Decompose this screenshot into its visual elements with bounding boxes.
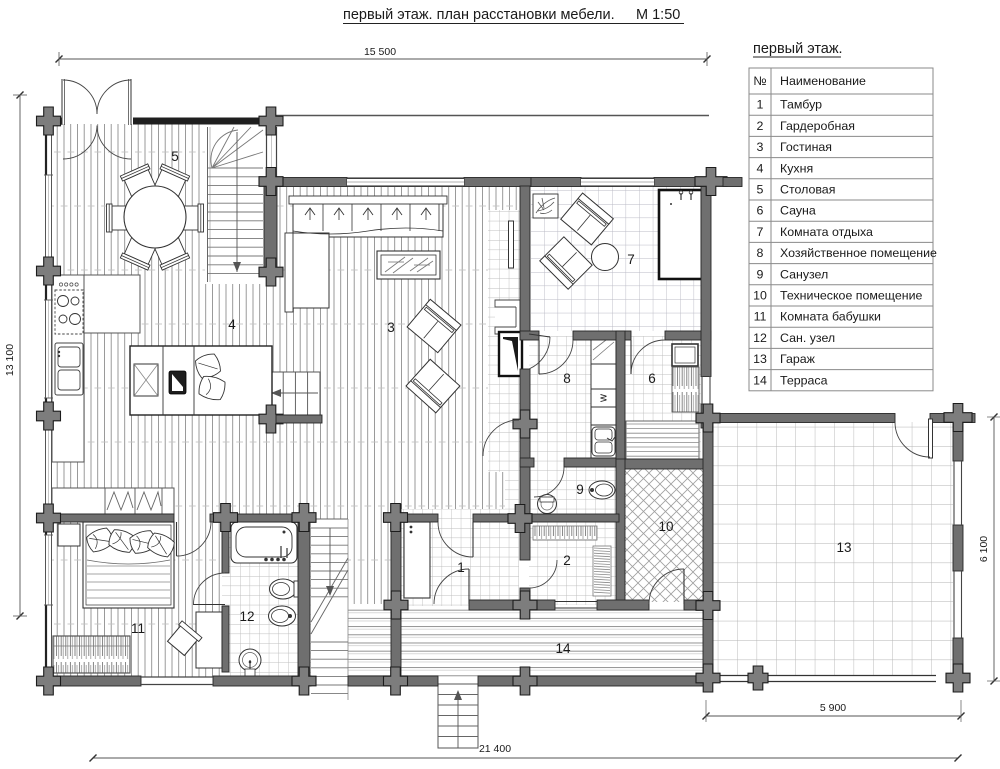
svg-text:14: 14 xyxy=(753,373,767,387)
svg-text:Гостиная: Гостиная xyxy=(780,140,832,154)
svg-text:13: 13 xyxy=(753,352,767,366)
svg-text:10: 10 xyxy=(658,519,673,534)
svg-text:12: 12 xyxy=(239,609,254,624)
svg-text:Комната отдыха: Комната отдыха xyxy=(780,225,873,239)
svg-text:6: 6 xyxy=(757,204,764,218)
svg-text:Комната бабушки: Комната бабушки xyxy=(780,310,881,324)
svg-text:3: 3 xyxy=(387,320,395,335)
svg-text:9: 9 xyxy=(576,482,584,497)
svg-text:7: 7 xyxy=(627,252,635,267)
svg-text:21 400: 21 400 xyxy=(479,743,511,755)
svg-text:Хозяйственное помещение: Хозяйственное помещение xyxy=(780,246,937,260)
svg-text:2: 2 xyxy=(757,119,764,133)
svg-text:14: 14 xyxy=(555,641,571,656)
svg-text:15 500: 15 500 xyxy=(364,46,396,58)
svg-text:Терраса: Терраса xyxy=(780,373,828,387)
svg-text:w: w xyxy=(598,394,610,403)
svg-text:первый этаж.: первый этаж. xyxy=(753,41,843,57)
svg-text:1: 1 xyxy=(757,98,764,112)
svg-text:первый этаж. план расстановки: первый этаж. план расстановки мебели. xyxy=(343,7,615,23)
svg-text:Тамбур: Тамбур xyxy=(780,98,822,112)
svg-text:12: 12 xyxy=(753,331,767,345)
svg-text:8: 8 xyxy=(563,371,571,386)
svg-text:Наименование: Наименование xyxy=(780,74,866,88)
svg-text:Сауна: Сауна xyxy=(780,204,816,218)
svg-text:Кухня: Кухня xyxy=(780,161,813,175)
svg-text:3: 3 xyxy=(757,140,764,154)
svg-text:2: 2 xyxy=(563,553,571,568)
svg-text:13 100: 13 100 xyxy=(4,344,16,376)
svg-text:6: 6 xyxy=(648,371,656,386)
svg-text:13: 13 xyxy=(836,540,851,555)
svg-text:М 1:50: М 1:50 xyxy=(636,7,680,23)
svg-text:4: 4 xyxy=(757,161,764,175)
svg-text:11: 11 xyxy=(754,310,767,324)
svg-text:9: 9 xyxy=(757,267,764,281)
svg-text:6 100: 6 100 xyxy=(978,536,990,562)
svg-text:5 900: 5 900 xyxy=(820,702,846,714)
svg-text:5: 5 xyxy=(757,183,764,197)
svg-text:Сан. узел: Сан. узел xyxy=(780,331,835,345)
svg-text:5: 5 xyxy=(171,149,179,164)
svg-text:7: 7 xyxy=(757,225,764,239)
svg-text:Гараж: Гараж xyxy=(780,352,816,366)
svg-text:Гардеробная: Гардеробная xyxy=(780,119,855,133)
svg-text:11: 11 xyxy=(131,621,145,636)
svg-text:Техническое помещение: Техническое помещение xyxy=(780,289,922,303)
svg-text:Санузел: Санузел xyxy=(780,267,828,281)
svg-text:№: № xyxy=(753,74,766,88)
svg-text:4: 4 xyxy=(228,317,236,332)
svg-text:1: 1 xyxy=(457,560,465,575)
svg-text:8: 8 xyxy=(757,246,764,260)
svg-text:Столовая: Столовая xyxy=(780,183,835,197)
svg-text:10: 10 xyxy=(753,289,767,303)
